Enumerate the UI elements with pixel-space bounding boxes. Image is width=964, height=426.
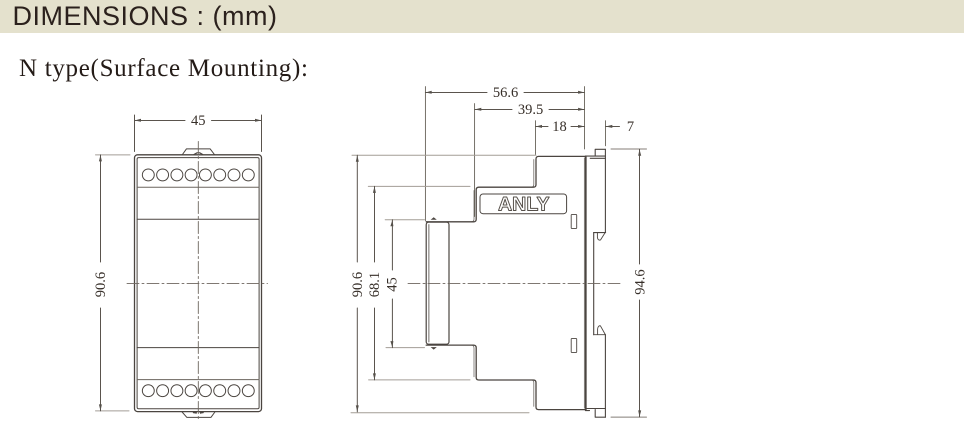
svg-text:94.6: 94.6 xyxy=(633,269,649,294)
svg-text:ANLY: ANLY xyxy=(498,194,550,216)
svg-text:90.6: 90.6 xyxy=(350,272,366,297)
svg-text:56.6: 56.6 xyxy=(493,85,518,101)
svg-text:18: 18 xyxy=(552,119,567,135)
svg-text:45: 45 xyxy=(385,277,401,292)
svg-text:45: 45 xyxy=(191,113,206,129)
svg-text:68.1: 68.1 xyxy=(367,272,383,297)
svg-text:7: 7 xyxy=(627,119,634,135)
svg-text:39.5: 39.5 xyxy=(518,102,543,118)
svg-text:90.6: 90.6 xyxy=(93,272,109,297)
